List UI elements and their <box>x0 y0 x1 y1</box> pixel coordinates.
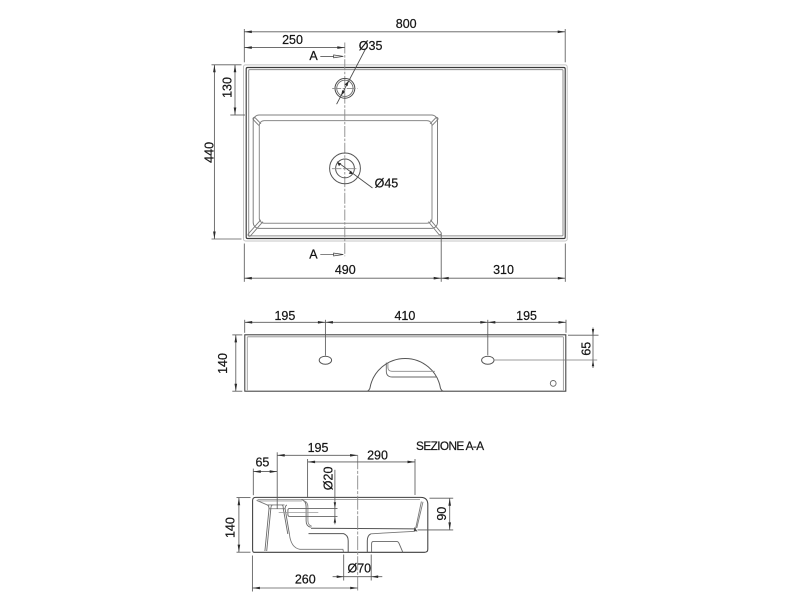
svg-text:310: 310 <box>493 263 514 277</box>
svg-text:800: 800 <box>396 17 417 31</box>
svg-text:140: 140 <box>223 517 237 538</box>
svg-text:410: 410 <box>394 309 415 323</box>
svg-text:195: 195 <box>516 309 537 323</box>
svg-text:Ø35: Ø35 <box>359 39 383 53</box>
svg-text:Ø20: Ø20 <box>322 467 336 491</box>
svg-text:65: 65 <box>255 456 269 470</box>
svg-text:490: 490 <box>335 263 356 277</box>
svg-text:90: 90 <box>435 507 449 521</box>
svg-text:130: 130 <box>220 77 234 98</box>
svg-text:195: 195 <box>274 309 295 323</box>
svg-text:Ø70: Ø70 <box>347 562 371 576</box>
svg-text:SEZIONE A-A: SEZIONE A-A <box>416 439 484 453</box>
svg-text:65: 65 <box>580 342 594 356</box>
svg-text:290: 290 <box>367 449 388 463</box>
svg-text:250: 250 <box>282 33 303 47</box>
svg-text:260: 260 <box>295 572 316 586</box>
svg-text:A: A <box>309 49 318 63</box>
svg-text:440: 440 <box>203 142 217 163</box>
svg-text:140: 140 <box>216 353 230 374</box>
svg-text:195: 195 <box>308 441 329 455</box>
svg-text:Ø45: Ø45 <box>375 177 399 191</box>
svg-text:A: A <box>309 248 318 262</box>
